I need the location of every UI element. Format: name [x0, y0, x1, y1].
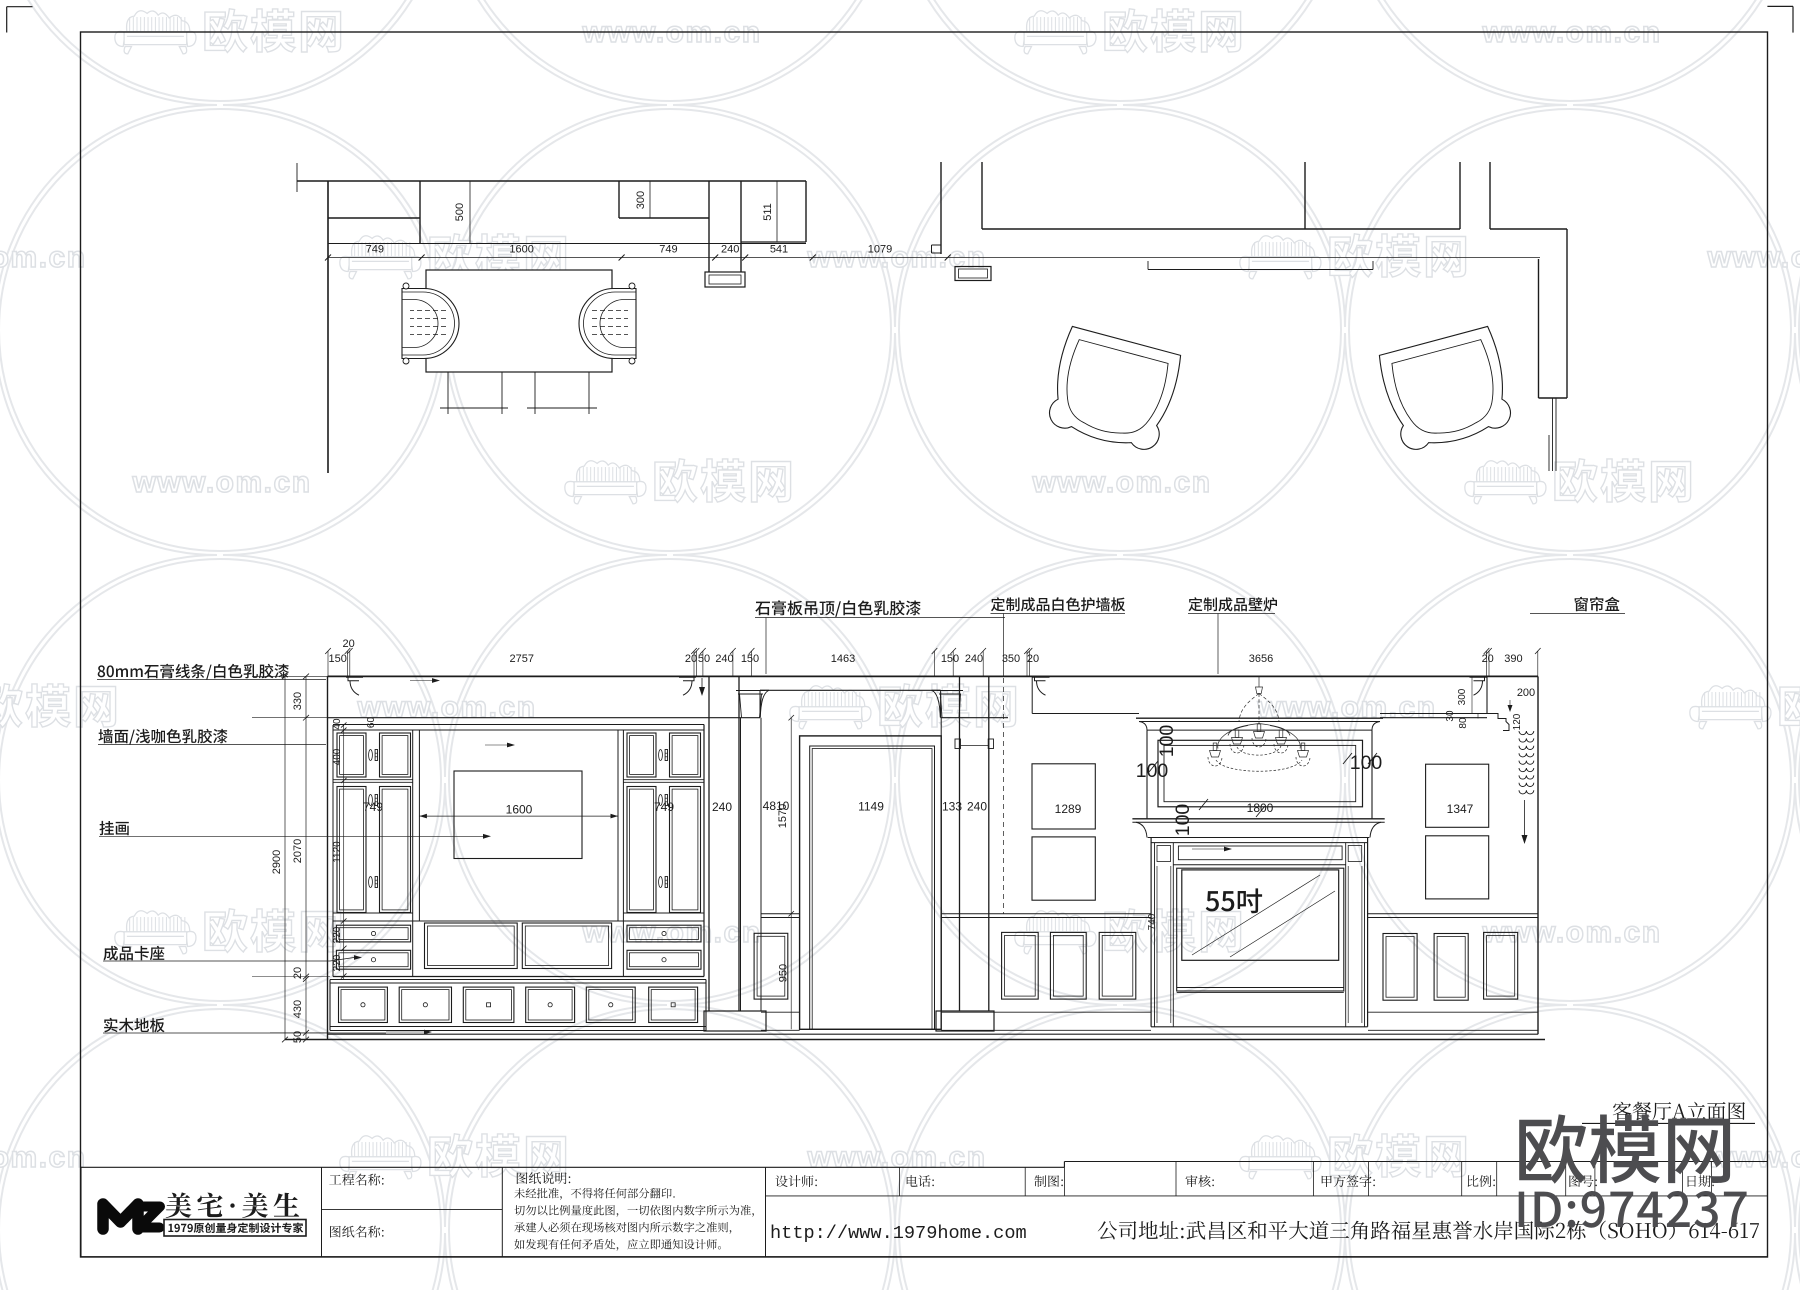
svg-text:500: 500 [454, 203, 466, 221]
svg-text:300: 300 [635, 191, 647, 209]
svg-text:www.om.cn: www.om.cn [1031, 466, 1211, 499]
svg-text:www.om.cn: www.om.cn [1706, 1141, 1800, 1174]
svg-text:220: 220 [332, 954, 343, 971]
svg-text:20: 20 [342, 638, 354, 650]
svg-text:541: 541 [770, 244, 788, 256]
svg-text:20: 20 [685, 653, 697, 665]
svg-text:390: 390 [1504, 653, 1522, 665]
svg-text:100: 100 [1156, 725, 1178, 758]
svg-text:200: 200 [1517, 687, 1535, 699]
svg-text:1570: 1570 [777, 804, 789, 828]
svg-text:www.om.cn: www.om.cn [1706, 241, 1800, 274]
svg-text:749: 749 [654, 800, 674, 814]
svg-text:150: 150 [329, 653, 347, 665]
svg-text:1600: 1600 [506, 803, 533, 817]
svg-text:150: 150 [741, 653, 759, 665]
svg-text:1289: 1289 [1055, 802, 1082, 816]
svg-text:20: 20 [292, 967, 304, 979]
svg-text:30: 30 [1445, 710, 1456, 722]
svg-text:20: 20 [1027, 653, 1039, 665]
svg-text:2757: 2757 [510, 653, 534, 665]
svg-text:240: 240 [967, 800, 987, 814]
svg-text:1463: 1463 [831, 653, 855, 665]
svg-text:133: 133 [942, 800, 962, 814]
svg-text:511: 511 [762, 203, 774, 221]
svg-text:330: 330 [292, 692, 304, 710]
svg-text:240: 240 [965, 653, 983, 665]
svg-text:300: 300 [1457, 688, 1468, 705]
svg-text:749: 749 [659, 244, 677, 256]
svg-text:1600: 1600 [509, 244, 533, 256]
svg-text:740: 740 [1147, 913, 1158, 930]
svg-text:749: 749 [363, 800, 383, 814]
svg-text:150: 150 [941, 653, 959, 665]
svg-text:240: 240 [715, 653, 733, 665]
svg-text:2070: 2070 [292, 839, 304, 863]
svg-text:240: 240 [712, 800, 732, 814]
svg-text:http://www.1979home.com: http://www.1979home.com [770, 1223, 1027, 1244]
svg-text:1149: 1149 [858, 800, 884, 814]
svg-text:www.om.cn: www.om.cn [0, 1141, 87, 1174]
svg-text:100: 100 [1136, 760, 1169, 782]
svg-text:www.om.cn: www.om.cn [356, 691, 536, 724]
svg-text:www.om.cn: www.om.cn [0, 241, 87, 274]
svg-text:www.om.cn: www.om.cn [1256, 691, 1436, 724]
svg-text:240: 240 [721, 244, 739, 256]
svg-text:20: 20 [1482, 653, 1494, 665]
svg-text:60: 60 [366, 717, 377, 729]
svg-text:350: 350 [1002, 653, 1020, 665]
svg-text:80: 80 [1458, 717, 1469, 729]
svg-text:1347: 1347 [1447, 802, 1474, 816]
svg-text:40: 40 [332, 718, 343, 730]
svg-text:www.om.cn: www.om.cn [806, 1141, 986, 1174]
svg-text:430: 430 [292, 1000, 304, 1018]
svg-text:100: 100 [1350, 752, 1383, 774]
svg-text:www.om.cn: www.om.cn [131, 466, 311, 499]
svg-text:3656: 3656 [1249, 653, 1273, 665]
svg-text:1079: 1079 [868, 244, 892, 256]
svg-text:950: 950 [778, 964, 790, 982]
svg-text:100: 100 [1172, 804, 1194, 837]
svg-text:50: 50 [698, 653, 710, 665]
svg-text:120: 120 [1512, 713, 1523, 730]
svg-text:220: 220 [332, 926, 343, 943]
svg-text:1800: 1800 [1247, 801, 1274, 815]
svg-text:400: 400 [332, 748, 343, 765]
svg-text:749: 749 [366, 244, 384, 256]
svg-text:2900: 2900 [271, 850, 283, 874]
svg-text:1120: 1120 [332, 841, 343, 863]
